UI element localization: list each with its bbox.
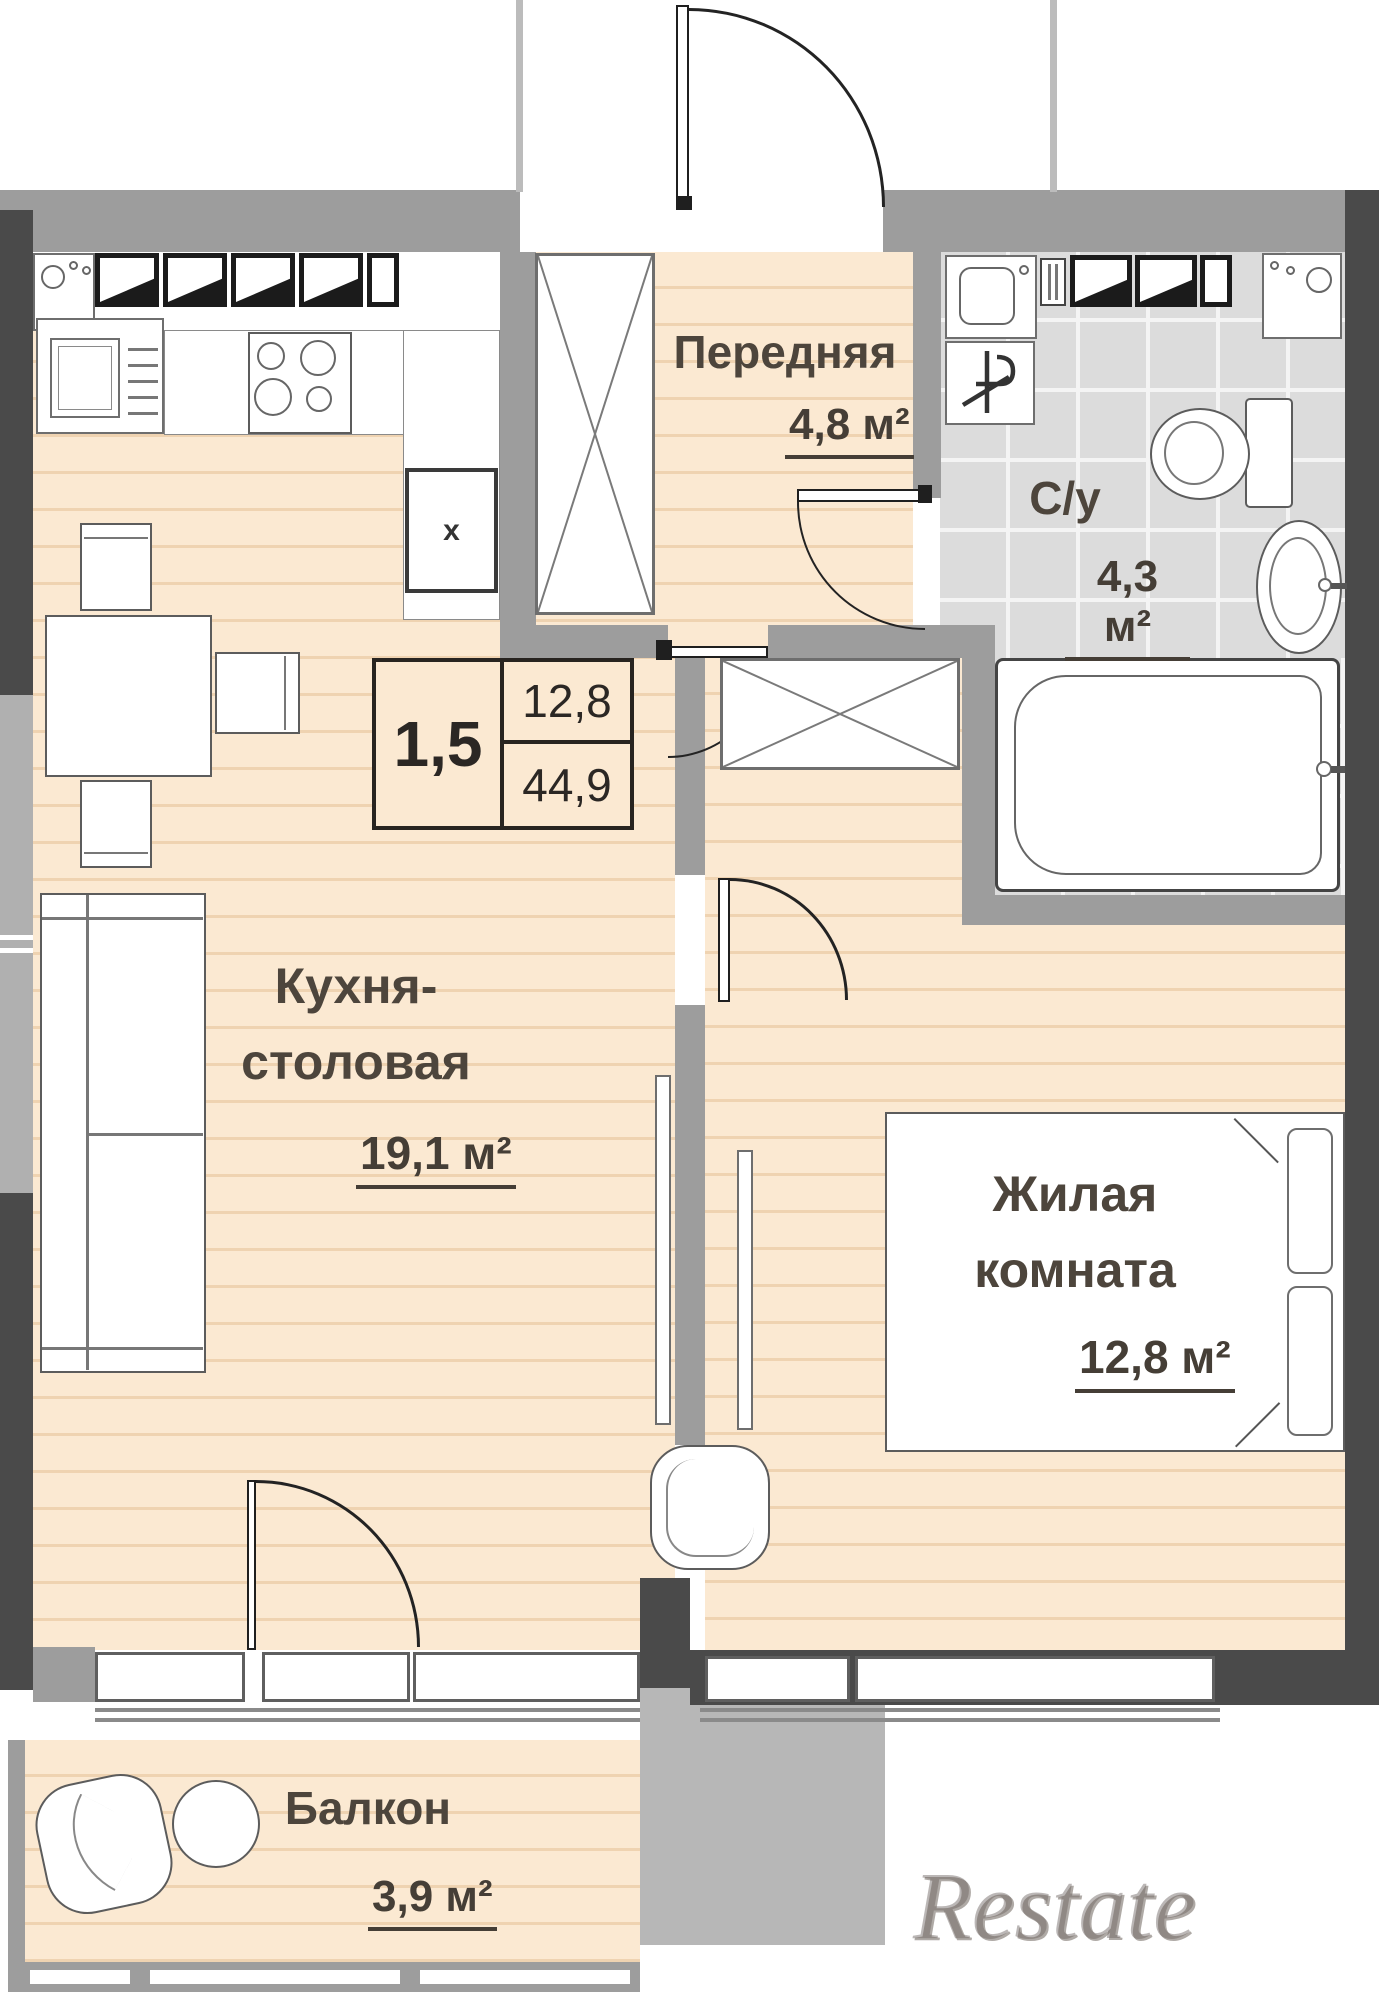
- bottom-corner-stub: [640, 1578, 690, 1688]
- dot-icon: [69, 261, 78, 270]
- bathroom-west-wall-lower: [962, 658, 995, 895]
- chair-back: [84, 527, 148, 539]
- bathtub-inner: [1014, 675, 1322, 875]
- armchair-seat-line: [666, 1459, 754, 1557]
- bathtub: [995, 658, 1340, 892]
- kitchen-sink-unit: [36, 318, 164, 434]
- hallway-name: Передняя: [655, 328, 915, 376]
- meter-line: [1055, 264, 1058, 300]
- sink-bowl-inner: [58, 346, 112, 410]
- valve-icon: [947, 343, 1033, 423]
- wardrobe-x-icon: [723, 661, 957, 767]
- living-window-sill-2: [700, 1718, 1220, 1722]
- top-wall-right: [883, 190, 1345, 252]
- kitchen-wall-cabinet-4: [299, 253, 363, 307]
- kitchen-window-1: [95, 1652, 245, 1702]
- burner-icon: [1306, 267, 1332, 293]
- total-area-value: 44,9: [522, 758, 612, 812]
- kitchen-area-value: 19,1 м²: [356, 1126, 516, 1189]
- kitchen-wall-cabinet-5: [367, 253, 399, 307]
- hallway-area-value: 4,8 м²: [785, 400, 914, 459]
- burner-icon: [254, 378, 292, 416]
- chair-back: [84, 852, 148, 864]
- drainer-line: [128, 396, 158, 399]
- living-window-2: [855, 1656, 1215, 1702]
- entrance-door-leaf: [676, 5, 689, 210]
- hallway-door-hinge: [656, 640, 672, 660]
- hallway-door-leaf: [668, 646, 768, 658]
- balcony-door-leaf: [247, 1480, 256, 1650]
- burner-icon: [300, 340, 336, 376]
- living-area-value: 12,8: [522, 674, 612, 728]
- hallway-south-wall-a: [500, 625, 668, 658]
- dot-icon: [1270, 261, 1279, 270]
- toilet-tank: [1245, 398, 1293, 508]
- tub-faucet-bar: [1331, 766, 1345, 773]
- vent-label: x: [443, 514, 460, 548]
- dining-chair-top: [80, 523, 152, 611]
- balcony-glazing-3: [420, 1970, 630, 1984]
- cabinet-glyph: [1075, 277, 1127, 302]
- right-wall: [1345, 190, 1379, 1705]
- living-name-line1: Жилая: [875, 1168, 1275, 1221]
- chair-back: [284, 656, 296, 730]
- meter-line: [1048, 264, 1051, 300]
- living-door-leaf: [718, 878, 730, 1002]
- sofa-armrest-top: [42, 917, 203, 920]
- sink-tap-bar: [1331, 583, 1347, 589]
- living-name-line2: комната: [875, 1244, 1275, 1297]
- dining-chair-bottom: [80, 780, 152, 868]
- left-window-sill-1: [0, 935, 33, 940]
- living-window-1: [705, 1656, 850, 1702]
- burner-icon: [257, 342, 285, 370]
- armchair: [650, 1445, 770, 1570]
- pillow: [1287, 1128, 1333, 1274]
- party-wall-line-left: [516, 0, 523, 192]
- balcony-name: Балкон: [168, 1784, 568, 1832]
- kitchen-window-sill-2: [95, 1718, 640, 1722]
- party-wall-line-right: [1050, 0, 1057, 192]
- kitchen-window-wall-left: [33, 1647, 95, 1702]
- left-wall-upper: [0, 210, 33, 695]
- dining-chair-right: [215, 652, 300, 734]
- apartment-info-box: 1,5 12,8 44,9: [372, 658, 634, 830]
- cabinet-glyph: [1140, 277, 1192, 302]
- living-wardrobe: [720, 658, 960, 770]
- cabinet-glyph: [236, 276, 290, 302]
- balcony-area-value: 3,9 м²: [368, 1872, 497, 1931]
- living-window-sill: [700, 1708, 1220, 1712]
- vent-shaft: x: [405, 468, 498, 593]
- floor-plan: x: [0, 0, 1379, 2000]
- water-valve-box: [945, 341, 1035, 425]
- bath-wall-cabinet-3: [1200, 255, 1232, 307]
- cabinet-glyph: [100, 276, 154, 302]
- hallway-west-wall: [500, 252, 536, 658]
- kitchen-wall-cabinet-2: [163, 253, 227, 307]
- living-area-value-label: 12,8 м²: [1075, 1330, 1235, 1393]
- restate-watermark: Restate: [915, 1852, 1375, 1963]
- kitchen-window-2: [262, 1652, 410, 1702]
- pouf-seam-line: [48, 1794, 148, 1891]
- bath-meter-box: [1040, 258, 1066, 306]
- dining-table: [45, 615, 212, 777]
- closet-x-icon: [538, 256, 652, 612]
- kitchen-window-3: [413, 1652, 640, 1702]
- bath-wall-cabinet-1: [1070, 255, 1132, 307]
- total-area-cell: 44,9: [504, 744, 630, 826]
- sink-tap-icon: [1318, 578, 1332, 592]
- bathroom-area-value: 4,3 м²: [1065, 552, 1190, 661]
- drainer-line: [128, 380, 158, 383]
- washing-machine: [945, 255, 1037, 339]
- room-count-value: 1,5: [394, 707, 483, 781]
- blanket-fold-line: [1235, 1402, 1280, 1447]
- balcony-glazing-2: [150, 1970, 400, 1984]
- bathroom-south-wall: [962, 895, 1345, 925]
- dot-icon: [1286, 266, 1295, 275]
- left-window-sill-2: [0, 948, 33, 953]
- burner-icon: [306, 386, 332, 412]
- drainer-line: [128, 412, 158, 415]
- entrance-door-hinge: [678, 196, 692, 210]
- water-heater: [1262, 253, 1342, 339]
- drainer-line: [128, 348, 158, 351]
- burner-icon: [41, 265, 65, 289]
- kitchen-wall-cabinet-3: [231, 253, 295, 307]
- balcony-left-wall: [8, 1740, 25, 1992]
- living-area-cell: 12,8: [504, 662, 630, 744]
- washer-door: [959, 267, 1015, 325]
- bathroom-door-leaf: [797, 489, 925, 502]
- bathroom-door-hinge: [918, 485, 932, 503]
- kitchen-name-line1: Кухня-: [156, 960, 556, 1013]
- bathroom-west-wall-upper: [913, 252, 941, 498]
- stove: [248, 332, 352, 434]
- left-wall-lower: [0, 1193, 33, 1690]
- hallway-south-wall-b: [768, 625, 995, 658]
- sofa-cushion-split: [86, 1133, 203, 1136]
- tub-faucet-icon: [1316, 761, 1332, 777]
- kitchen-wall-cabinet-1: [95, 253, 159, 307]
- balcony-glazing-1: [30, 1970, 130, 1984]
- tv-unit-kitchen-side: [655, 1075, 671, 1425]
- cabinet-glyph: [168, 276, 222, 302]
- room-count-cell: 1,5: [376, 662, 504, 826]
- hall-closet: [535, 253, 655, 615]
- top-wall-left: [0, 190, 520, 252]
- sofa-armrest-bottom: [42, 1347, 203, 1350]
- washer-knob: [1019, 265, 1029, 275]
- dot-icon: [82, 266, 91, 275]
- left-wall-window-band: [0, 695, 33, 1193]
- entrance-door-arc: [689, 8, 885, 207]
- pillow: [1287, 1286, 1333, 1436]
- kitchen-name-line2: столовая: [156, 1036, 556, 1089]
- kitchen-window-sill: [95, 1708, 640, 1712]
- tv-unit-living-side: [737, 1150, 753, 1430]
- cabinet-glyph: [304, 276, 358, 302]
- divider-wall-lower: [675, 1005, 705, 1445]
- bathroom-name: С/у: [940, 474, 1190, 522]
- bath-wall-cabinet-2: [1135, 255, 1197, 307]
- drainer-line: [128, 364, 158, 367]
- blanket-fold-line: [1234, 1118, 1279, 1163]
